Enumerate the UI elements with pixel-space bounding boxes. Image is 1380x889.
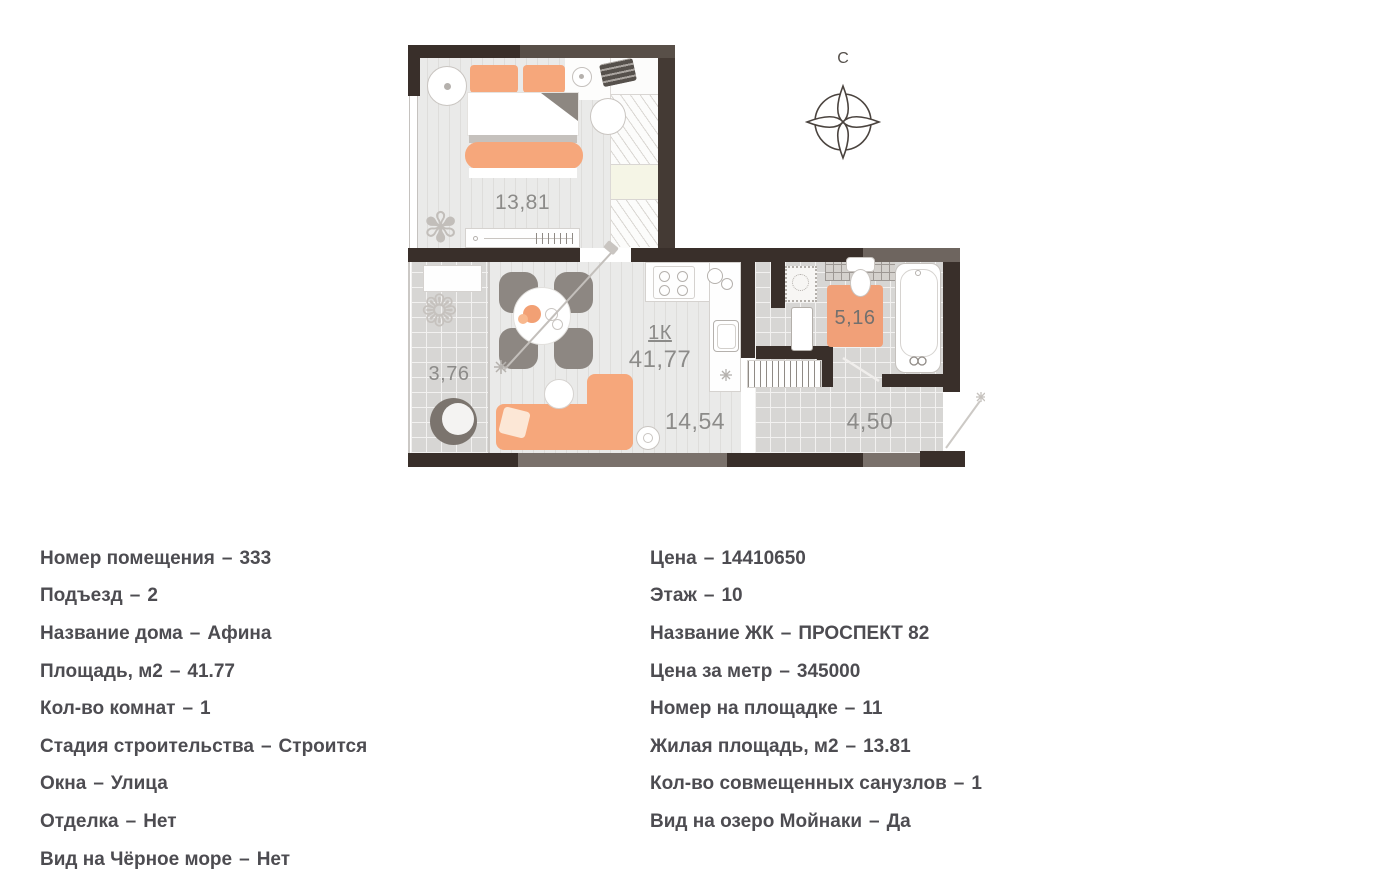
detail-separator: –	[222, 548, 233, 570]
detail-value: 333	[239, 548, 271, 570]
detail-value: 41.77	[187, 661, 235, 683]
detail-separator: –	[846, 736, 857, 758]
detail-row: Номер помещения–333	[40, 540, 640, 578]
details-right-column: Цена–14410650 Этаж–10 Название ЖК–ПРОСПЕ…	[650, 540, 1250, 841]
detail-row: Название дома–Афина	[40, 615, 640, 653]
detail-separator: –	[190, 623, 201, 645]
detail-row: Вид на Чёрное море–Нет	[40, 841, 640, 879]
detail-row: Жилая площадь, м2–13.81	[650, 728, 1250, 766]
detail-separator: –	[182, 698, 193, 720]
detail-value: Нет	[143, 811, 176, 833]
detail-label: Вид на Чёрное море	[40, 849, 232, 871]
detail-value: Да	[887, 811, 911, 833]
detail-label: Стадия строительства	[40, 736, 254, 758]
detail-label: Отделка	[40, 811, 119, 833]
detail-separator: –	[130, 585, 141, 607]
compass-rose-icon	[797, 72, 889, 170]
detail-row: Название ЖК–ПРОСПЕКТ 82	[650, 615, 1250, 653]
detail-label: Название дома	[40, 623, 183, 645]
listing-page: { "plan": { "compass_label": "С", "label…	[0, 0, 1380, 889]
detail-separator: –	[93, 773, 104, 795]
detail-label: Номер на площадке	[650, 698, 838, 720]
detail-value: 11	[862, 698, 882, 720]
detail-row: Номер на площадке–11	[650, 690, 1250, 728]
detail-value: Улица	[111, 773, 168, 795]
detail-value: 2	[147, 585, 158, 607]
detail-row: Стадия строительства–Строится	[40, 728, 640, 766]
detail-separator: –	[869, 811, 880, 833]
detail-row: Отделка–Нет	[40, 803, 640, 841]
detail-label: Окна	[40, 773, 86, 795]
detail-row: Кол-во комнат–1	[40, 690, 640, 728]
detail-separator: –	[781, 623, 792, 645]
detail-separator: –	[779, 661, 790, 683]
detail-label: Номер помещения	[40, 548, 215, 570]
detail-value: 1	[971, 773, 982, 795]
detail-value: ПРОСПЕКТ 82	[798, 623, 929, 645]
detail-row: Площадь, м2–41.77	[40, 653, 640, 691]
detail-value: Строится	[279, 736, 368, 758]
detail-separator: –	[704, 585, 715, 607]
detail-label: Цена	[650, 548, 697, 570]
detail-separator: –	[170, 661, 181, 683]
detail-label: Кол-во совмещенных санузлов	[650, 773, 947, 795]
detail-row: Вид на озеро Мойнаки–Да	[650, 803, 1250, 841]
detail-value: 10	[721, 585, 742, 607]
detail-separator: –	[704, 548, 715, 570]
detail-row: Кол-во совмещенных санузлов–1	[650, 766, 1250, 804]
compass: С	[797, 50, 889, 170]
detail-label: Этаж	[650, 585, 697, 607]
detail-value: 1	[200, 698, 211, 720]
detail-label: Название ЖК	[650, 623, 774, 645]
detail-separator: –	[126, 811, 137, 833]
detail-separator: –	[261, 736, 272, 758]
detail-value: Нет	[257, 849, 290, 871]
detail-label: Подъезд	[40, 585, 123, 607]
detail-separator: –	[239, 849, 250, 871]
plan-overlay-lines	[405, 45, 985, 469]
detail-value: 14410650	[721, 548, 806, 570]
detail-value: Афина	[207, 623, 271, 645]
detail-row: Подъезд–2	[40, 578, 640, 616]
floor-plan: ✾ 13,81 ❁ 3,76 1К 41,77 14,54	[405, 45, 985, 469]
detail-value: 345000	[797, 661, 860, 683]
detail-label: Кол-во комнат	[40, 698, 175, 720]
detail-label: Цена за метр	[650, 661, 772, 683]
detail-separator: –	[954, 773, 965, 795]
detail-row: Этаж–10	[650, 578, 1250, 616]
detail-row: Окна–Улица	[40, 766, 640, 804]
detail-value: 13.81	[863, 736, 911, 758]
detail-label: Площадь, м2	[40, 661, 163, 683]
detail-label: Вид на озеро Мойнаки	[650, 811, 862, 833]
detail-row: Цена–14410650	[650, 540, 1250, 578]
compass-north-label: С	[797, 50, 889, 72]
details-left-column: Номер помещения–333 Подъезд–2 Название д…	[40, 540, 640, 878]
detail-label: Жилая площадь, м2	[650, 736, 839, 758]
detail-separator: –	[845, 698, 856, 720]
detail-row: Цена за метр–345000	[650, 653, 1250, 691]
